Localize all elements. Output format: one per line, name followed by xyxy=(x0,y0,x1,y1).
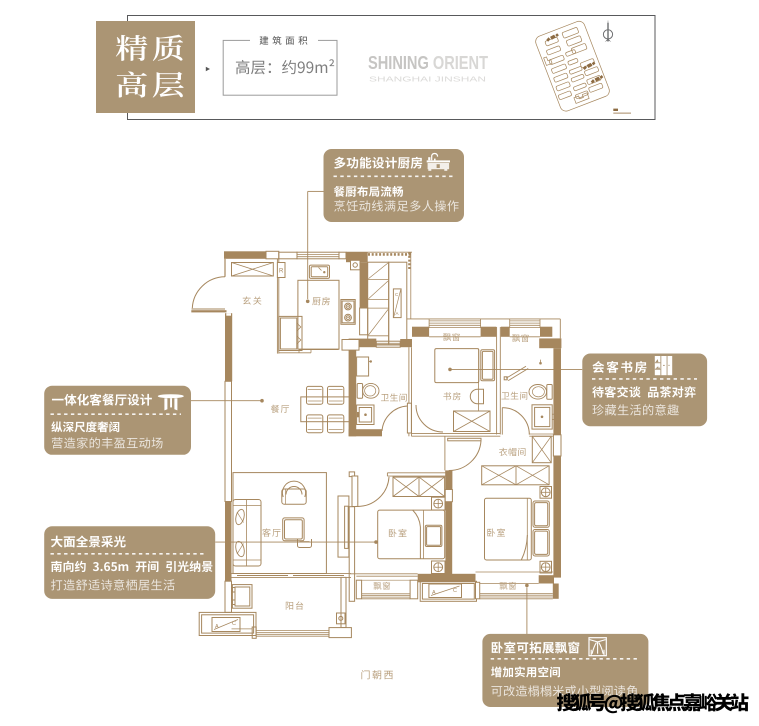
svg-text:C: C xyxy=(453,588,457,594)
svg-text:A: A xyxy=(432,590,436,596)
svg-text:A: A xyxy=(396,311,399,316)
svg-text:A: A xyxy=(215,624,219,630)
svg-text:SHANGHAI JINSHAN: SHANGHAI JINSHAN xyxy=(369,75,486,84)
svg-text:SHINING ORIENT: SHINING ORIENT xyxy=(368,52,489,73)
svg-text:C: C xyxy=(232,621,236,627)
svg-text:R: R xyxy=(279,269,284,275)
